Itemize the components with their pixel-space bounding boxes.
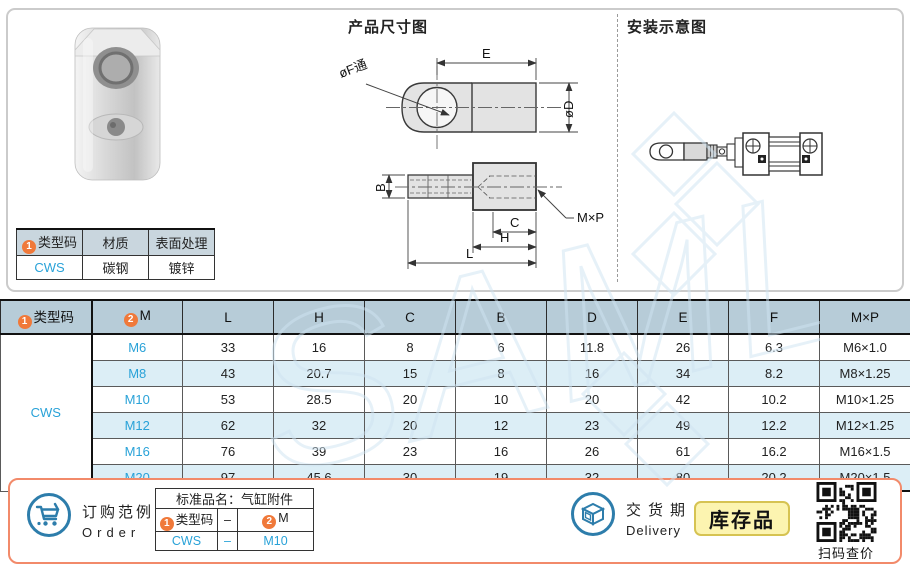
stock-badge: 库存品 [694, 501, 790, 536]
col-header-D: D [547, 300, 638, 334]
delivery-box-icon [571, 492, 615, 536]
table-cell: 26 [547, 439, 638, 465]
marker-2-icon: 2 [262, 515, 276, 529]
order-table-title-row: 标准品名：气缸附件 [156, 489, 314, 509]
marker-1-icon: 1 [22, 240, 36, 254]
dim-label-H: H [500, 230, 509, 245]
table-cell: 16.2 [729, 439, 820, 465]
table-row: M1676392316266116.2M16×1.5 [1, 439, 910, 465]
qr-code [815, 482, 878, 542]
spec-header-finish: 表面处理 [149, 229, 215, 256]
m-size-cell: M6 [92, 334, 183, 361]
table-cell: 8 [456, 361, 547, 387]
col-header-B: B [456, 300, 547, 334]
table-cell: 49 [638, 413, 729, 439]
col-header-E: E [638, 300, 729, 334]
table-cell: 16 [547, 361, 638, 387]
qr-block: 扫码查价 [812, 482, 880, 562]
order-value-m: M10 [238, 532, 314, 551]
table-cell: 61 [638, 439, 729, 465]
table-cell: M8×1.25 [820, 361, 910, 387]
marker-2-icon: 2 [124, 313, 138, 327]
dim-label-MxP: M×P [577, 210, 604, 225]
table-cell: 20.7 [274, 361, 365, 387]
table-cell: 12 [456, 413, 547, 439]
table-cell: 16 [456, 439, 547, 465]
delivery-title-cn: 交货期 [626, 499, 692, 520]
table-header-row: 1类型码 2M LHCBDEFM×P [1, 300, 910, 334]
spec-header-row: 1类型码 材质 表面处理 [17, 229, 215, 256]
table-cell: 26 [638, 334, 729, 361]
cart-icon [27, 493, 71, 537]
table-cell: 33 [183, 334, 274, 361]
table-cell: 23 [547, 413, 638, 439]
dim-label-L: L [466, 246, 473, 261]
table-cell: M10×1.25 [820, 387, 910, 413]
table-cell: M6×1.0 [820, 334, 910, 361]
spec-material-value: 碳钢 [83, 256, 149, 280]
order-heading: 订购范例 Order [82, 501, 154, 540]
col-header-typecode: 1类型码 [1, 300, 92, 334]
table-cell: 6.3 [729, 334, 820, 361]
table-cell: 76 [183, 439, 274, 465]
table-cell: 8 [365, 334, 456, 361]
col-header-M×P: M×P [820, 300, 910, 334]
m-size-cell: M16 [92, 439, 183, 465]
dim-label-E: E [482, 46, 491, 61]
dim-label-C: C [510, 215, 519, 230]
table-cell: 16 [274, 334, 365, 361]
order-header-dash: – [218, 509, 238, 532]
standard-name: 标准品名：气缸附件 [156, 489, 314, 509]
table-cell: M16×1.5 [820, 439, 910, 465]
table-cell: 11.8 [547, 334, 638, 361]
spec-finish-value: 镀锌 [149, 256, 215, 280]
m-size-cell: M10 [92, 387, 183, 413]
marker-1-icon: 1 [18, 315, 32, 329]
install-diagram-title: 安装示意图 [627, 16, 707, 37]
spec-table: 1类型码 材质 表面处理 CWS 碳钢 镀锌 [16, 228, 215, 280]
order-title-cn: 订购范例 [82, 501, 154, 522]
order-table-value-row: CWS – M10 [156, 532, 314, 551]
section-divider [617, 14, 618, 282]
table-cell: M12×1.25 [820, 413, 910, 439]
dimension-drawing: E øD øF通 B M×P C [332, 40, 624, 285]
table-cell: 20 [365, 387, 456, 413]
type-code-cell: CWS [1, 334, 92, 491]
table-cell: 42 [638, 387, 729, 413]
install-diagram [646, 120, 836, 190]
table-cell: 62 [183, 413, 274, 439]
col-header-C: C [365, 300, 456, 334]
table-cell: 53 [183, 387, 274, 413]
order-value-dash: – [218, 532, 238, 551]
table-row: M84320.715816348.2M8×1.25 [1, 361, 910, 387]
order-value-typecode: CWS [156, 532, 218, 551]
spec-typecode-value: CWS [17, 256, 83, 280]
table-cell: 32 [274, 413, 365, 439]
table-cell: 8.2 [729, 361, 820, 387]
m-size-cell: M12 [92, 413, 183, 439]
table-cell: 28.5 [274, 387, 365, 413]
delivery-title-en: Delivery [626, 523, 692, 538]
delivery-heading: 交货期 Delivery [626, 499, 692, 538]
table-cell: 20 [365, 413, 456, 439]
table-cell: 15 [365, 361, 456, 387]
order-title-en: Order [82, 525, 154, 540]
table-row: M1262322012234912.2M12×1.25 [1, 413, 910, 439]
table-row: CWSM633168611.8266.3M6×1.0 [1, 334, 910, 361]
dim-label-F: øF通 [337, 56, 369, 80]
order-header-m: 2M [238, 509, 314, 532]
table-cell: 10.2 [729, 387, 820, 413]
col-header-H: H [274, 300, 365, 334]
dim-label-D: øD [561, 101, 576, 118]
catalog-page: 1类型码 材质 表面处理 CWS 碳钢 镀锌 产品尺寸图 E [0, 0, 910, 565]
table-cell: 43 [183, 361, 274, 387]
order-table-header-row: 1类型码 – 2M [156, 509, 314, 532]
table-cell: 23 [365, 439, 456, 465]
qr-caption: 扫码查价 [812, 543, 880, 562]
marker-1-icon: 1 [160, 517, 174, 531]
table-cell: 6 [456, 334, 547, 361]
spec-header-material: 材质 [83, 229, 149, 256]
table-cell: 12.2 [729, 413, 820, 439]
table-cell: 39 [274, 439, 365, 465]
order-example-table: 标准品名：气缸附件 1类型码 – 2M CWS – M10 [155, 488, 314, 551]
dimension-drawing-title: 产品尺寸图 [348, 16, 428, 37]
order-header-typecode: 1类型码 [156, 509, 218, 532]
side-view-rod [408, 175, 473, 198]
table-cell: 34 [638, 361, 729, 387]
table-cell: 20 [547, 387, 638, 413]
spec-data-row: CWS 碳钢 镀锌 [17, 256, 215, 280]
side-view-block [473, 163, 536, 210]
table-row: M105328.52010204210.2M10×1.25 [1, 387, 910, 413]
product-photo [50, 14, 185, 194]
dimension-table: 1类型码 2M LHCBDEFM×P CWSM633168611.8266.3M… [0, 299, 910, 492]
dim-label-B: B [373, 183, 388, 192]
col-header-F: F [729, 300, 820, 334]
col-header-L: L [183, 300, 274, 334]
spec-header-typecode: 1类型码 [17, 229, 83, 256]
m-size-cell: M8 [92, 361, 183, 387]
table-cell: 10 [456, 387, 547, 413]
col-header-m: 2M [92, 300, 183, 334]
